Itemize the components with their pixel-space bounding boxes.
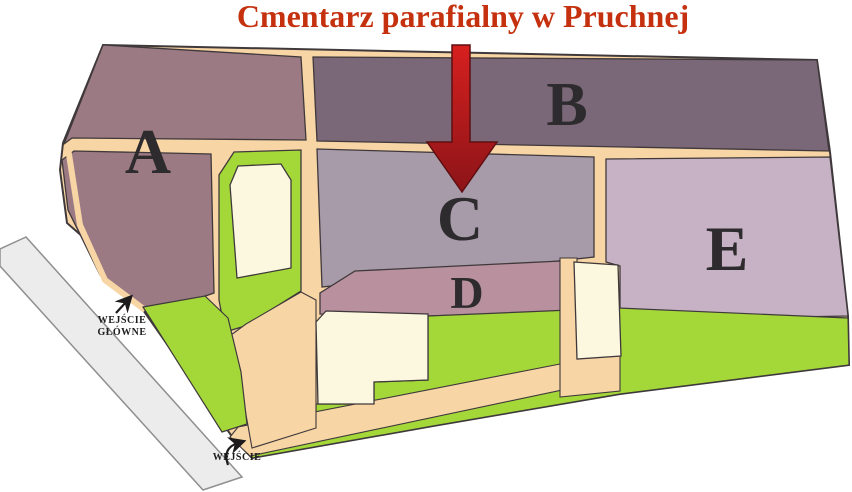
map-title: Cmentarz parafialny w Pruchnej [237, 0, 689, 34]
main-entrance-label-line2: GŁÓWNE [97, 326, 146, 338]
chapel-building [230, 164, 291, 278]
section-d-label: D [450, 267, 483, 318]
cemetery-map: A B C D E Cmentarz parafialny w Pruchnej… [0, 0, 852, 492]
section-a-upper-region [64, 45, 306, 144]
side-entrance-label: WEJŚCIE [213, 451, 262, 463]
map-canvas: A B C D E Cmentarz parafialny w Pruchnej… [0, 0, 852, 492]
east-building [574, 262, 621, 359]
section-c-label: C [437, 183, 483, 254]
section-a-label: A [125, 116, 171, 187]
section-e-label: E [706, 213, 749, 284]
main-entrance-label-line1: WEJŚCIE [98, 314, 147, 326]
main-entrance-arrow-icon [116, 301, 127, 313]
section-b-label: B [546, 71, 587, 139]
